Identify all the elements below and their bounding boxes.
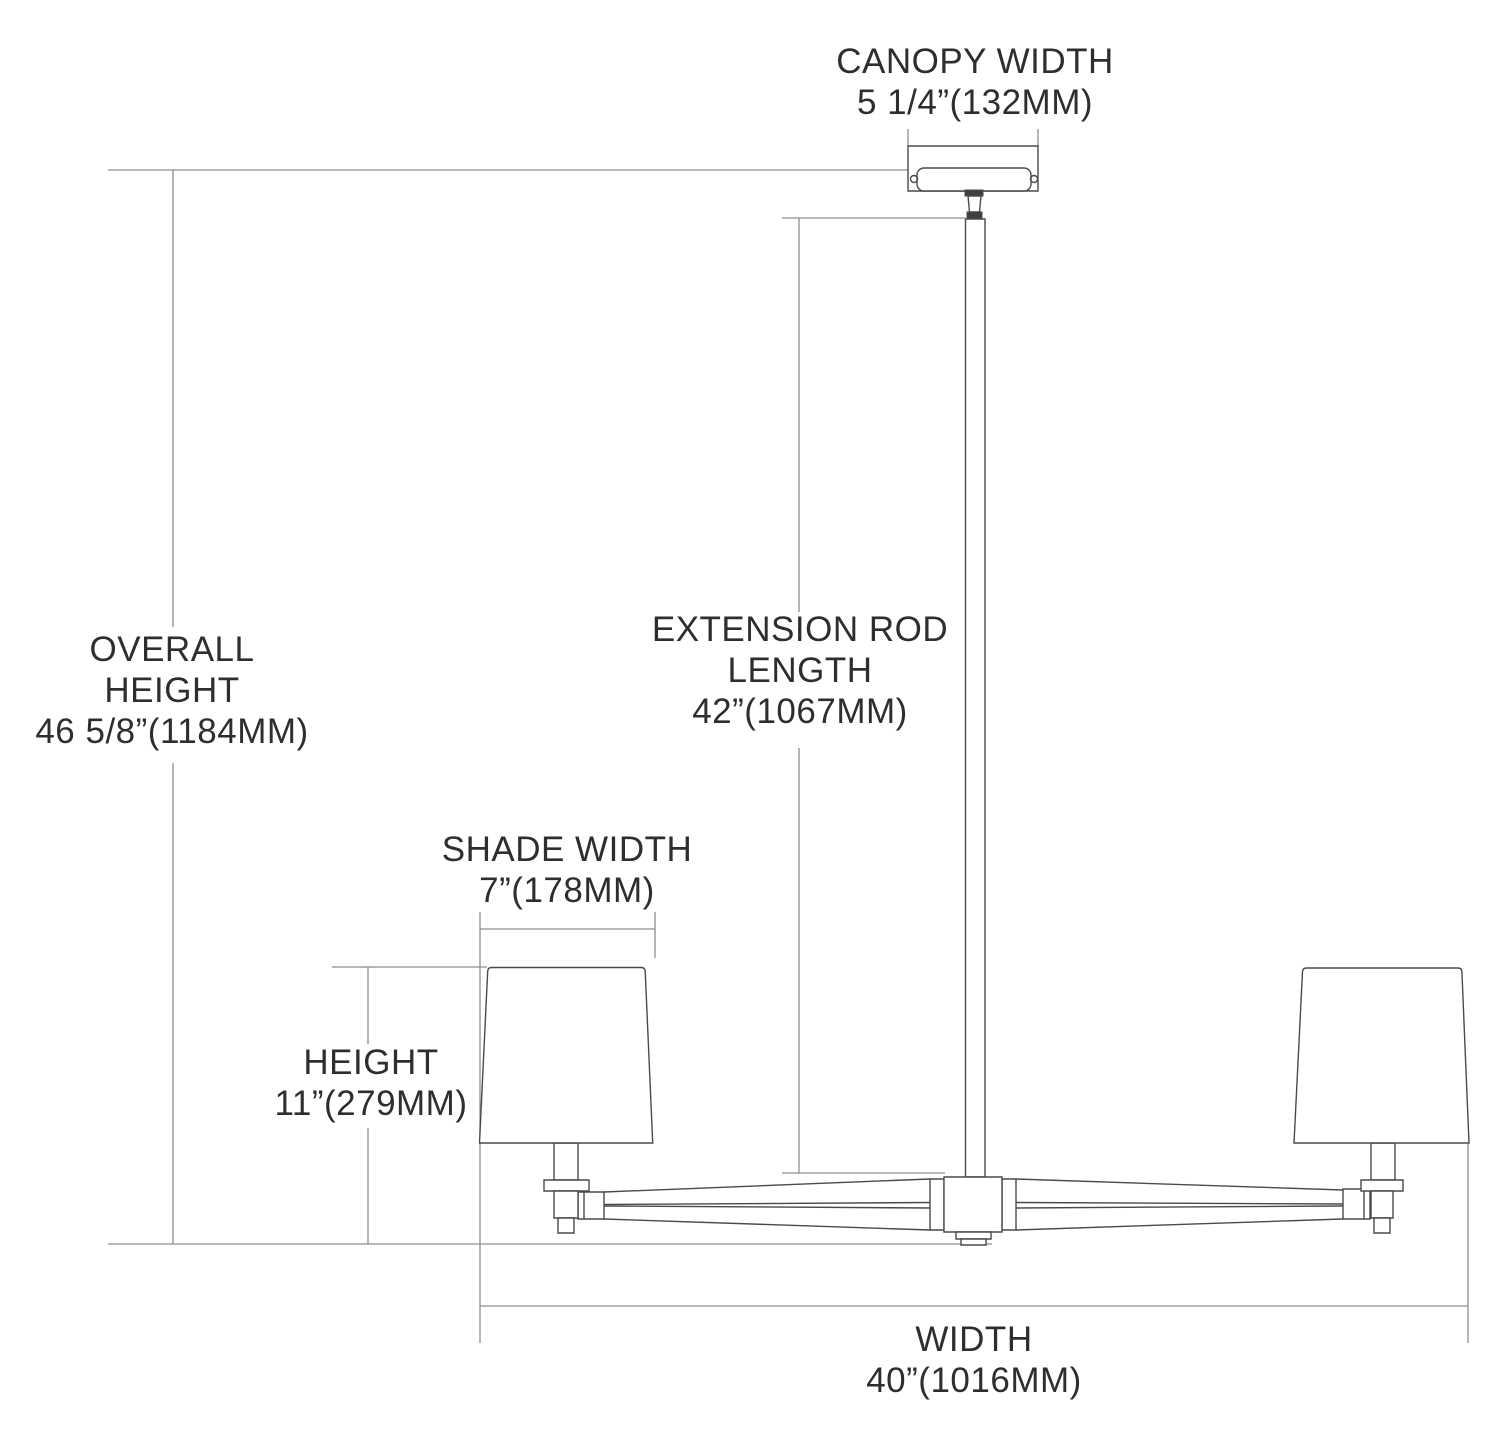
right-arm [1016,1179,1370,1230]
extension-rod [966,219,986,1177]
width-label: WIDTH 40”(1016MM) [866,1319,1082,1401]
canopy-width-label-line: CANOPY WIDTH [836,41,1114,82]
center-hub [930,1177,1016,1245]
height-label: HEIGHT 11”(279MM) [274,1042,467,1124]
right-arm-ferrule [1343,1189,1370,1219]
height-label-value: 11”(279MM) [274,1083,467,1124]
overall-height-label-line: HEIGHT [35,670,308,711]
overall-height-label-line: OVERALL [35,629,308,670]
extension-rod-label-value: 42”(1067MM) [652,691,948,732]
extension-rod-label-line: LENGTH [652,650,948,691]
shade-width-label-line: SHADE WIDTH [442,829,693,870]
right-shade [1294,968,1469,1143]
height-label-line: HEIGHT [274,1042,467,1083]
dimension-diagram: CANOPY WIDTH 5 1/4”(132MM) OVERALL HEIGH… [0,0,1500,1456]
shade-width-label: SHADE WIDTH 7”(178MM) [442,829,693,911]
hub-finial-bottom [961,1239,986,1245]
canopy-width-label-value: 5 1/4”(132MM) [836,82,1114,123]
canopy [908,146,1038,191]
width-label-value: 40”(1016MM) [866,1360,1082,1401]
extension-rod-length-label: EXTENSION ROD LENGTH 42”(1067MM) [652,609,948,732]
extension-rod-label-line: EXTENSION ROD [652,609,948,650]
canopy-width-label: CANOPY WIDTH 5 1/4”(132MM) [836,41,1114,123]
hub-finial-top [956,1232,991,1239]
overall-height-label-value: 46 5/8”(1184MM) [35,711,308,752]
left-arm [578,1179,930,1230]
left-arm-ferrule [578,1192,604,1219]
left-socket-finial [558,1218,574,1233]
left-shade [480,968,653,1144]
canopy-width-dimension [908,129,1038,146]
right-socket-finial [1374,1218,1390,1233]
shade-width-label-value: 7”(178MM) [442,870,693,911]
overall-height-label: OVERALL HEIGHT 46 5/8”(1184MM) [35,629,308,752]
width-label-line: WIDTH [866,1319,1082,1360]
canopy-connector [965,190,983,219]
